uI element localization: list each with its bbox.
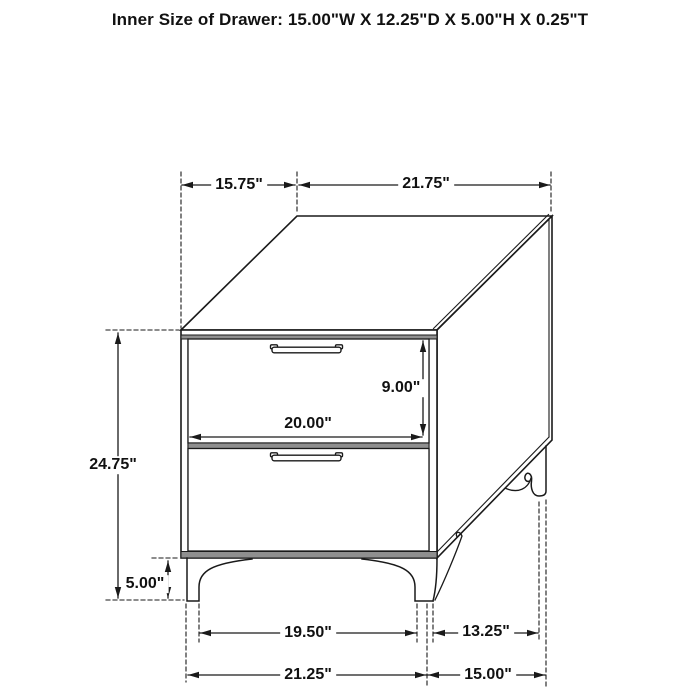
cabinet-front-face [181,330,437,558]
furniture-line-drawing [0,0,700,700]
dim-label-drawer-height: 9.00" [378,379,425,397]
dim-label-front-base: 21.25" [280,666,336,684]
front-left-leg [187,558,252,601]
dim-label-side-leg-span: 13.25" [458,623,514,641]
dim-label-side-base: 15.00" [460,666,516,684]
diagram-canvas: Inner Size of Drawer: 15.00"W X 12.25"D … [0,0,700,700]
drawer-divider [188,443,429,449]
dim-label-overall-height: 24.75" [85,456,141,474]
dim-label-front-leg-span: 19.50" [280,624,336,642]
dim-label-top-width: 21.75" [398,175,454,193]
drawer-front-bottom [188,449,429,552]
dim-label-drawer-width: 20.00" [280,415,336,433]
dim-label-top-depth: 15.75" [211,176,267,194]
bottom-rail-shadow [181,552,437,559]
dim-label-leg-height: 5.00" [122,575,169,593]
